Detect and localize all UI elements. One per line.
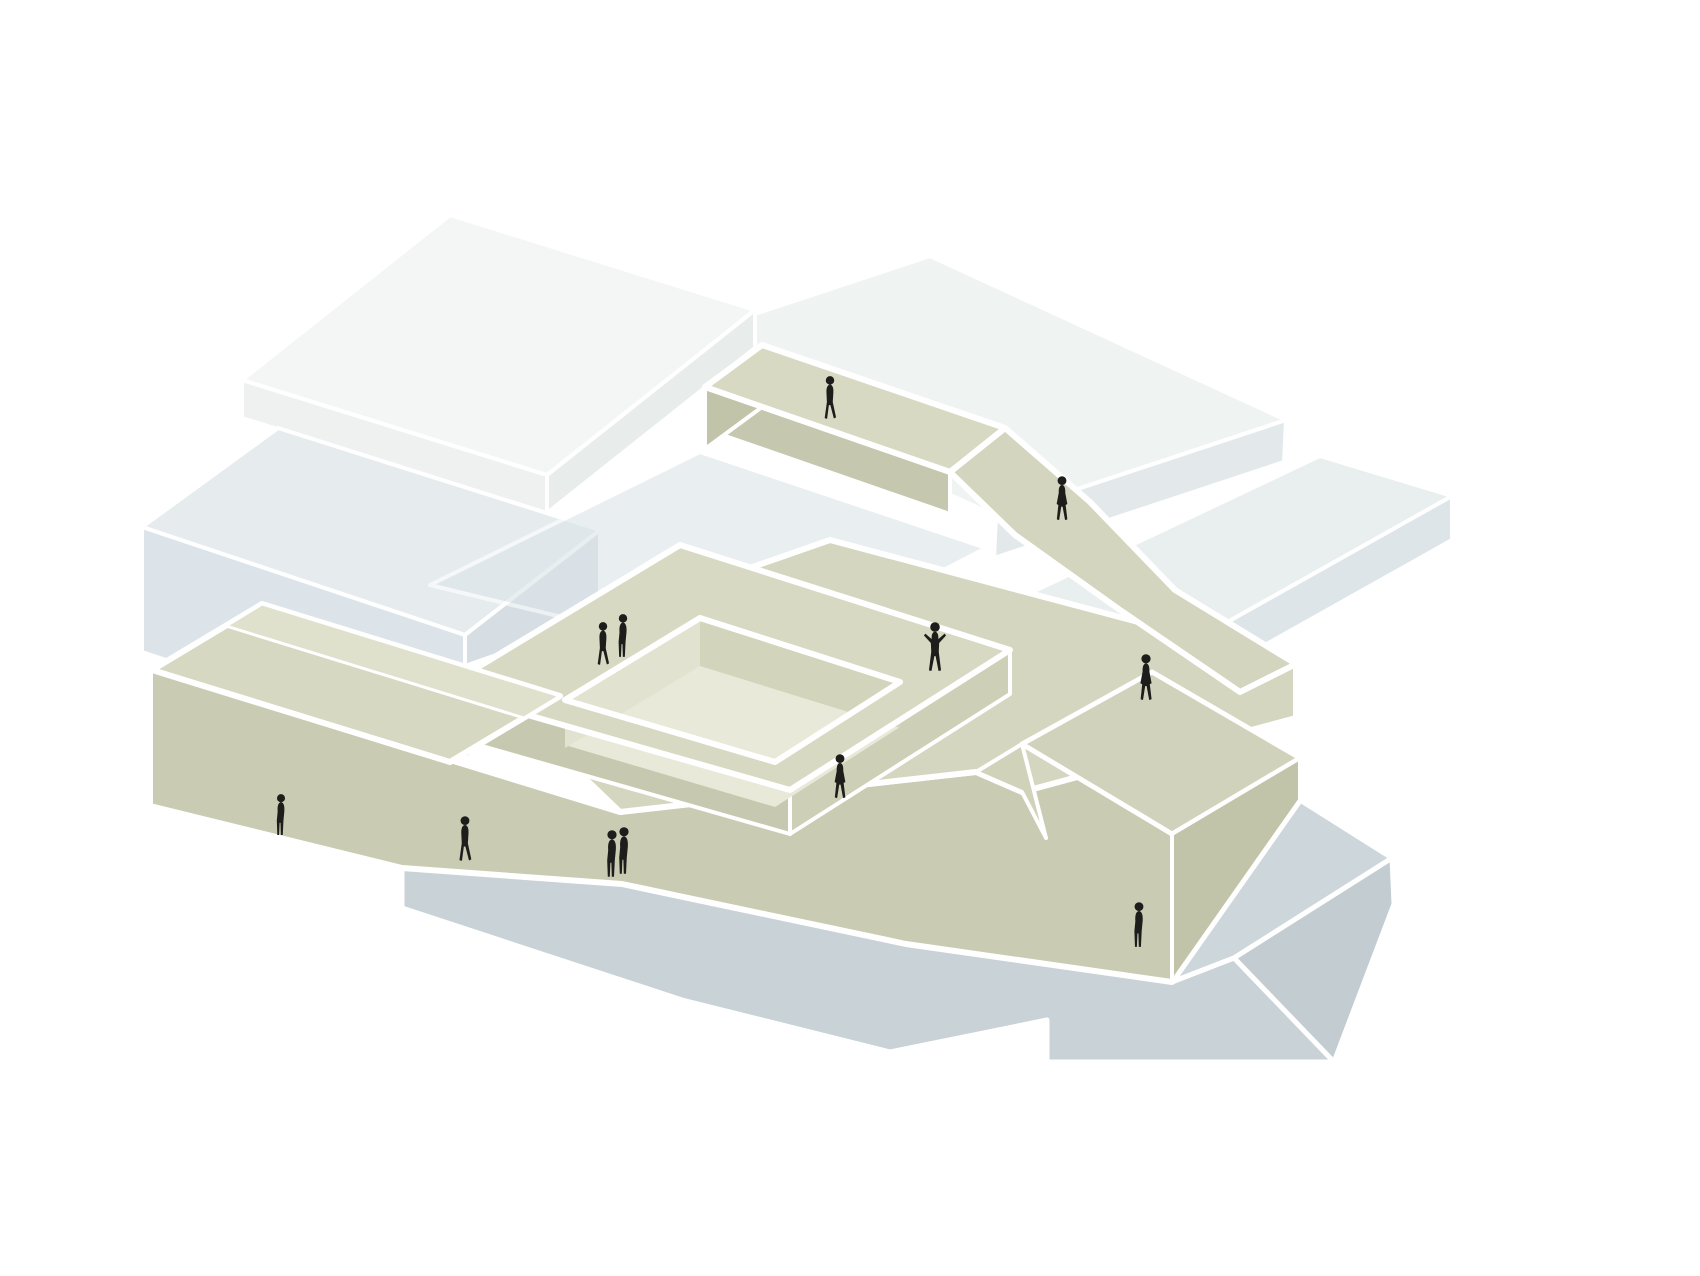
- diagram-canvas: [0, 0, 1700, 1276]
- axonometric-diagram: [0, 0, 1700, 1276]
